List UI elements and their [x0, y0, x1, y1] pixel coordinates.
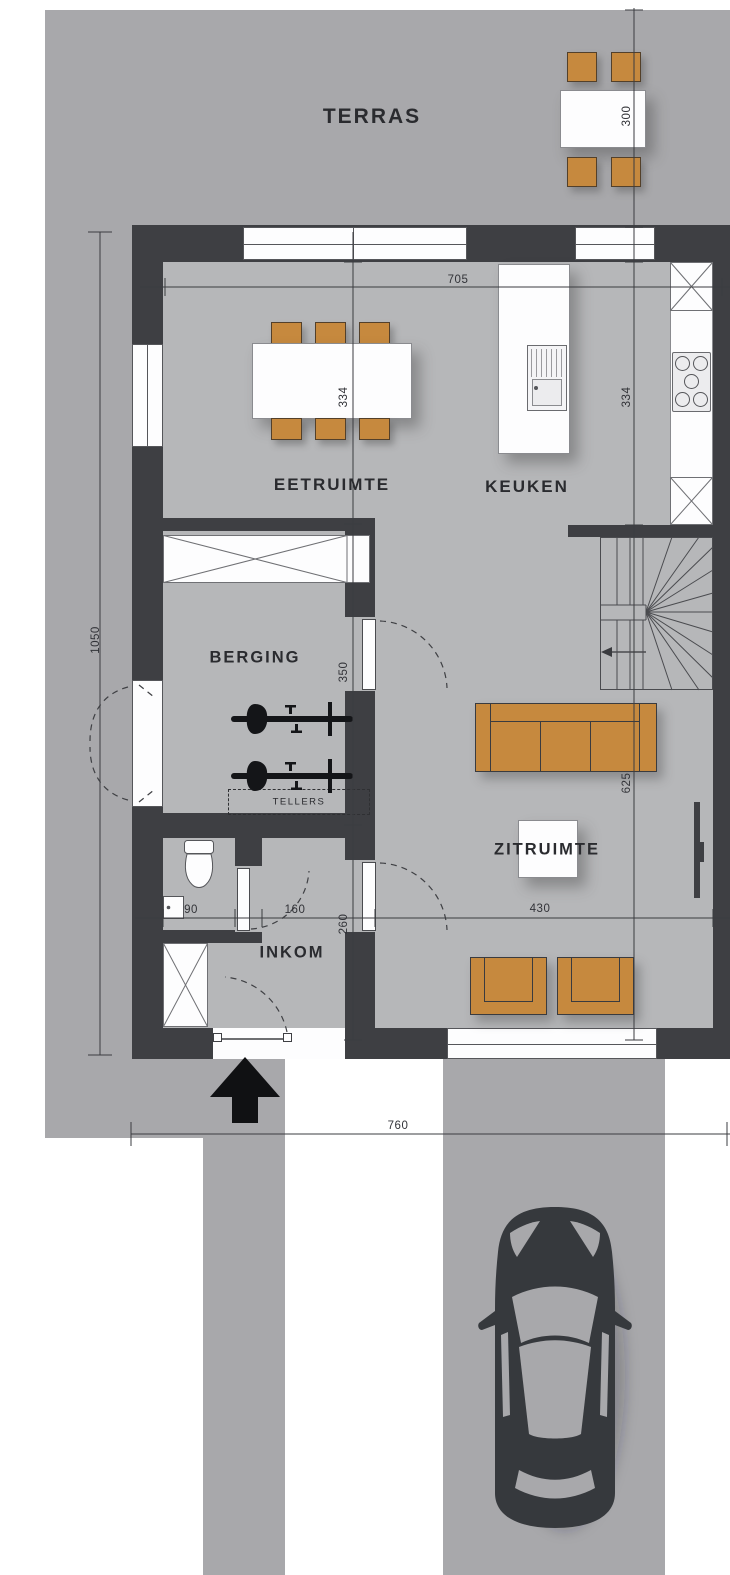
dim-plot-width: 760 [388, 1120, 409, 1132]
armchair [557, 957, 634, 1015]
wall-berging-north [163, 518, 375, 531]
sofa-arm-line [639, 704, 640, 771]
sofa-arm-line [490, 704, 491, 771]
dim-building-depth: 1050 [90, 626, 102, 654]
terrace-table [560, 90, 646, 148]
dim-inkom-width: 160 [285, 904, 306, 916]
side-path-left [45, 225, 132, 1138]
dim-plan-width-top: 705 [448, 274, 469, 286]
dim-terras-table: 300 [621, 106, 633, 127]
burner-icon [675, 392, 690, 407]
tv-mount [700, 842, 704, 862]
wall-hall-vertical [345, 518, 375, 1028]
floor-plan: TERRAS EETRUIMTE KEUKEN BERGING INKOM ZI… [0, 0, 730, 1575]
door-leaf-wc [237, 868, 250, 931]
dining-chair [359, 322, 390, 344]
dim-inkom-depth: 260 [338, 914, 350, 935]
burner-icon [693, 392, 708, 407]
dim-zitruimte-width: 430 [530, 903, 551, 915]
dim-keuken-depth: 334 [621, 387, 633, 408]
terrace-chair [567, 52, 597, 82]
burner-icon [693, 356, 708, 371]
terrace-chair [611, 52, 641, 82]
window-mullion [353, 228, 354, 259]
sofa-seat-divider [590, 721, 591, 771]
sofa-back-line [490, 721, 640, 722]
dim-eetruimte-depth: 334 [338, 387, 350, 408]
armchair-arm-line [619, 958, 620, 1001]
terrace-chair [611, 157, 641, 187]
dining-chair [315, 322, 346, 344]
wall-berging-south [163, 813, 375, 838]
door-berging-exterior [132, 680, 163, 807]
window-bottom-living [447, 1028, 657, 1059]
dim-wc-width: 90 [184, 904, 198, 916]
terrace-chair [567, 157, 597, 187]
faucet-icon [534, 386, 538, 390]
room-label-inkom: INKOM [260, 944, 325, 963]
door-leaf-inkom [362, 862, 376, 931]
armchair-back-line [484, 1001, 533, 1002]
sink-basin [532, 379, 562, 406]
wall-keuken-south [568, 525, 730, 537]
armchair-arm-line [571, 958, 572, 1001]
dining-table [252, 343, 412, 419]
dining-chair [271, 418, 302, 440]
footpath [203, 1138, 285, 1575]
room-label-keuken: KEUKEN [485, 477, 569, 497]
door-leaf-berging [362, 619, 376, 690]
front-yard-strip [45, 1059, 285, 1138]
burner-icon [675, 356, 690, 371]
window-mullion [448, 1044, 656, 1045]
driveway [443, 1059, 665, 1575]
window-mullion [147, 345, 148, 446]
room-label-tellers: TELLERS [273, 797, 326, 808]
dining-chair [315, 418, 346, 440]
room-label-berging: BERGING [209, 649, 300, 668]
cooktop [672, 352, 711, 412]
dining-chair [359, 418, 390, 440]
armchair [470, 957, 547, 1015]
front-door-opening [213, 1028, 345, 1059]
window-mullion [244, 244, 466, 245]
wall-right [713, 262, 730, 1028]
dining-chair [271, 322, 302, 344]
dim-berging-depth: 350 [338, 662, 350, 683]
armchair-arm-line [484, 958, 485, 1001]
room-label-zitruimte: ZITRUIMTE [494, 841, 600, 860]
kitchen-sink [527, 345, 567, 411]
armchair-back-line [571, 1001, 620, 1002]
sink-drainboard [531, 349, 563, 377]
room-label-terras: TERRAS [323, 105, 421, 129]
sofa [475, 703, 657, 772]
dim-zitruimte-depth: 625 [621, 773, 633, 794]
window-left-dining [132, 344, 163, 447]
window-top-dining [243, 227, 467, 260]
room-label-eetruimte: EETRUIMTE [274, 475, 390, 495]
sofa-seat-divider [540, 721, 541, 771]
burner-icon [684, 374, 699, 389]
window-top-kitchen [575, 227, 655, 260]
armchair-arm-line [532, 958, 533, 1001]
window-mullion [576, 244, 654, 245]
